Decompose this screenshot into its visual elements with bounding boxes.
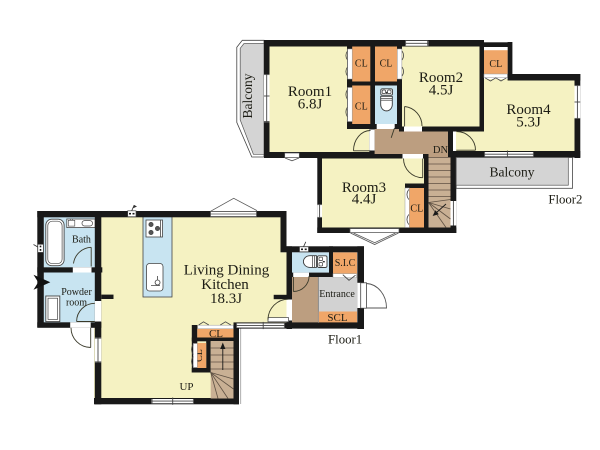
svg-text:Floor1: Floor1 [328,333,362,347]
svg-text:Entrance: Entrance [319,289,355,300]
svg-text:CL: CL [380,59,393,70]
svg-text:Balcony: Balcony [240,73,255,118]
svg-text:4.5J: 4.5J [429,82,454,98]
svg-text:Powder: Powder [61,287,92,298]
svg-text:Floor2: Floor2 [548,192,582,206]
svg-text:5.3J: 5.3J [516,115,541,131]
svg-text:6.8J: 6.8J [298,96,323,112]
svg-text:Balcony: Balcony [490,165,535,180]
svg-text:18.3J: 18.3J [210,291,242,307]
svg-text:UP: UP [179,381,193,393]
svg-text:Bath: Bath [72,235,91,246]
svg-text:CL: CL [489,59,502,70]
svg-text:S.I.C: S.I.C [335,258,356,269]
svg-text:CL: CL [209,328,223,340]
svg-text:CL: CL [355,102,368,113]
svg-text:CL: CL [410,204,423,215]
svg-text:4.4J: 4.4J [352,192,377,208]
svg-text:CL: CL [355,59,368,70]
svg-text:DN: DN [433,145,449,156]
svg-text:SCL: SCL [327,312,347,324]
